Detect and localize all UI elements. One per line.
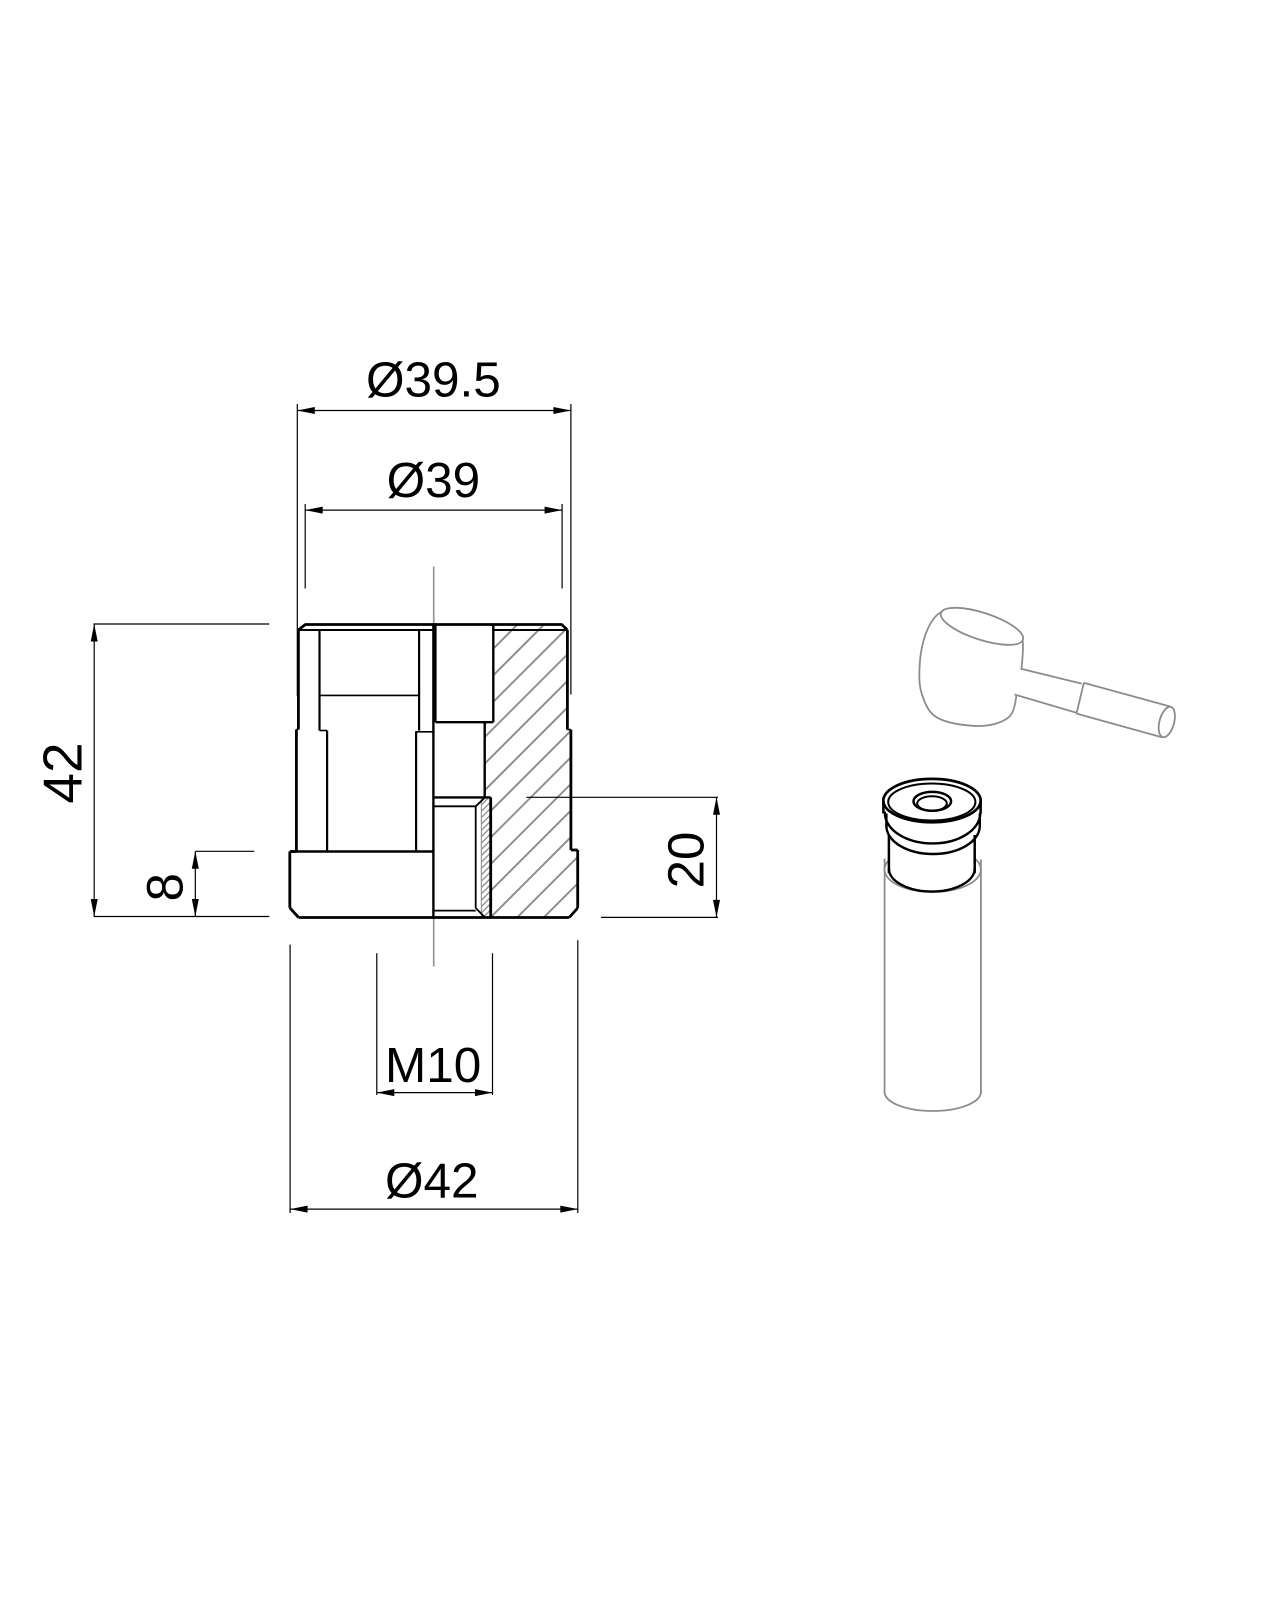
svg-text:Ø42: Ø42 <box>385 1154 479 1209</box>
svg-text:20: 20 <box>658 832 715 889</box>
svg-text:Ø39: Ø39 <box>387 453 481 508</box>
svg-text:M10: M10 <box>385 1038 481 1093</box>
svg-text:8: 8 <box>137 873 194 901</box>
svg-text:42: 42 <box>32 742 94 803</box>
svg-text:Ø39.5: Ø39.5 <box>366 352 501 407</box>
